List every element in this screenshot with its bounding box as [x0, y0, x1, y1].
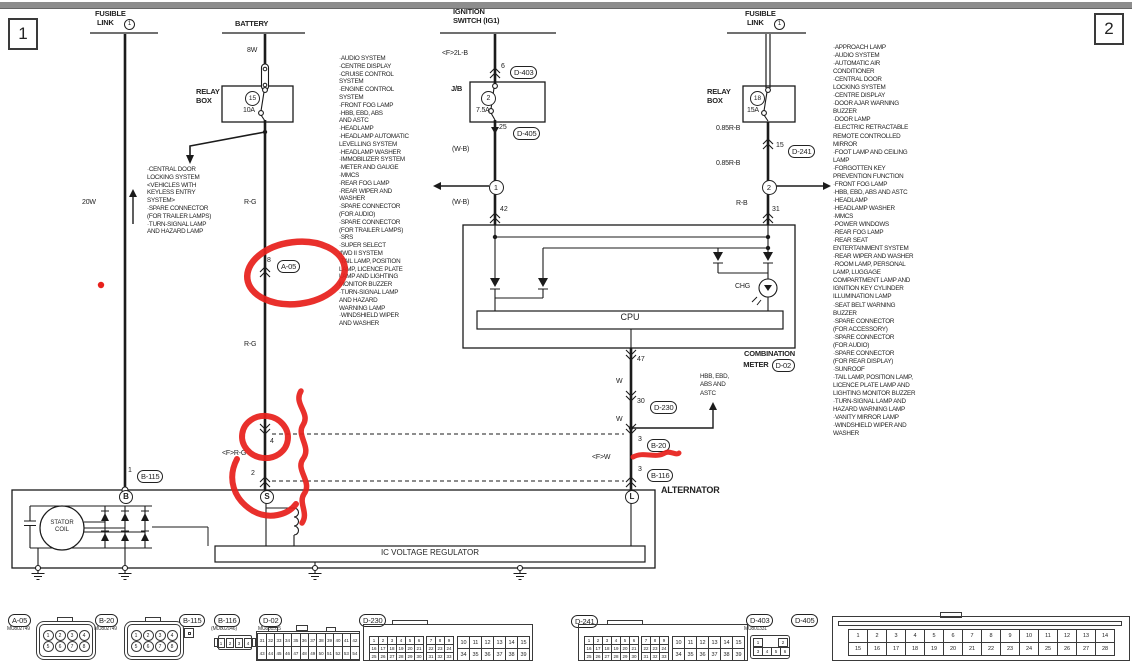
wire-label-frg: <F>R-G — [222, 450, 246, 457]
wire-label-wb-2: (W-B) — [452, 199, 469, 206]
wire-label-2lb: <F>2L-B — [442, 50, 468, 57]
connector-pill-d405-ref: D-405 — [513, 123, 540, 141]
pin-grid-d241-small: 123456789 161718192021222324 25262728293… — [584, 636, 668, 661]
junction-2-icon: 2 — [762, 180, 777, 195]
fuse-2-icon: 2 — [481, 91, 496, 106]
pin-grid-d02: 313233343536373839404142 434445464748495… — [256, 631, 360, 661]
pin-grid-d230-big: 101112131415 343536373839 — [457, 636, 529, 661]
fusible-link-right-number: 1 — [774, 19, 785, 30]
pin-2: 2 — [251, 470, 255, 477]
relay-box-left-label: RELAYBOX — [196, 88, 220, 105]
wiring-svg — [0, 0, 1132, 661]
connector-pill-b20-ref: B-20 — [647, 435, 670, 453]
junction-1-icon: 1 — [489, 180, 504, 195]
wire-label-8w: 8W — [247, 47, 257, 54]
red-dot — [98, 282, 104, 288]
fuse-rating-15a: 15A — [747, 107, 759, 114]
connector-pill-d405: D-405 — [791, 610, 818, 628]
fuse-15-icon: 15 — [245, 91, 260, 106]
part-number-d403: MU801331 — [744, 626, 767, 632]
wire-label-fw: <F>W — [592, 454, 610, 461]
fuse-rating-10a: 10A — [243, 107, 255, 114]
wire-label-085rb-1: 0.85R-B — [716, 125, 740, 132]
pin-grid-b20: 1234 5678 — [124, 621, 184, 660]
fusible-link-right-label2: LINK — [747, 19, 764, 28]
connector-pill-b115: B-115 — [179, 610, 205, 628]
wiring-diagram-page: 1 2 FUSIBLE LINK 1 BATTERY IGNITIONSWITC… — [0, 0, 1132, 661]
pin-6: 6 — [501, 63, 505, 70]
pin-25: 25 — [499, 124, 507, 131]
terminal-b-icon: B — [119, 490, 133, 504]
red-annotations — [0, 0, 1132, 661]
chg-lamp-label: CHG — [735, 283, 750, 290]
wire-label-085rb-2: 0.85R-B — [716, 160, 740, 167]
pin-1: 1 — [128, 467, 132, 474]
pin-grid-d403: 1 2 3456 — [750, 635, 790, 659]
relay-box-right-label: RELAYBOX — [707, 88, 731, 105]
wire-label-rg-1: R-G — [244, 199, 256, 206]
connector-pill-b116-ref: B-116 — [647, 465, 673, 483]
pin-30: 30 — [637, 398, 645, 405]
pin-grid-d230-small: 123456789 161718192021222324 25262728293… — [369, 636, 453, 661]
red-circle-b20-pin — [239, 413, 290, 461]
pin-15: 15 — [776, 142, 784, 149]
pin-grid-d405: 1234567891011121314 15161718192021222324… — [848, 629, 1114, 656]
battery-label: BATTERY — [235, 20, 268, 29]
part-number-a05: MU802749 — [7, 626, 30, 632]
wire-label-w1: W — [616, 378, 622, 385]
pin-31: 31 — [772, 206, 780, 213]
connector-pill-d230-ref: D-230 — [650, 397, 677, 415]
terminal-l-icon: L — [625, 490, 639, 504]
pin-3b: 3 — [638, 466, 642, 473]
right-systems-list: ·APPROACH LAMP·AUDIO SYSTEM·AUTOMATIC AI… — [833, 44, 915, 438]
red-hook-arc — [232, 459, 296, 516]
page-number-left: 1 — [8, 18, 38, 50]
stator-coil-label: STATORCOIL — [40, 520, 84, 534]
ignition-switch-label: IGNITIONSWITCH (IG1) — [453, 8, 499, 25]
connector-pill-d403-ref: D-403 — [510, 62, 537, 80]
hbb-branch-label: HBB, EBD,ABS ANDASTC — [700, 373, 729, 398]
cpu-label: CPU — [477, 312, 783, 322]
connector-pill-d241-ref: D-241 — [788, 141, 815, 159]
pin-b115-inner — [188, 632, 191, 635]
fuse-18-icon: 18 — [750, 91, 765, 106]
fusible-link-left-label2: LINK — [97, 19, 114, 28]
fuse-rating-75a: 7.5A — [476, 107, 490, 114]
wire-label-rb: R-B — [736, 200, 747, 207]
battery-branch-systems-list: ·CENTRAL DOORLOCKING SYSTEM<VEHICLES WIT… — [147, 166, 211, 236]
alternator-label: ALTERNATOR — [661, 486, 720, 495]
pin-3a: 3 — [638, 436, 642, 443]
ic-voltage-regulator-label: IC VOLTAGE REGULATOR — [215, 548, 645, 557]
pin-4: 4 — [270, 438, 274, 445]
red-squiggle-line — [299, 391, 307, 523]
terminal-s-icon: S — [260, 490, 274, 504]
combination-meter-label: COMBINATION — [678, 350, 795, 359]
wire-label-wb-1: (W-B) — [452, 146, 469, 153]
pin-grid-d241-big: 101112131415 343536373839 — [672, 636, 744, 661]
wire-label-rg-2: R-G — [244, 341, 256, 348]
pin-b115 — [184, 628, 194, 638]
pin-8: 8 — [267, 257, 271, 264]
pin-grid-a05: 1234 5678 — [36, 621, 96, 660]
part-number-b116: (MU802046) — [211, 626, 237, 632]
jb-label: J/B — [451, 85, 462, 94]
d405-inner-bar — [838, 621, 1122, 626]
pin-47: 47 — [637, 356, 645, 363]
wire-label-w2: W — [616, 416, 622, 423]
connector-pill-a05-ref: A-05 — [277, 256, 300, 274]
part-number-b20: MU802749 — [94, 626, 117, 632]
wire-label-20w: 20W — [82, 199, 96, 206]
fusible-link-left-number: 1 — [124, 19, 135, 30]
pin-42: 42 — [500, 206, 508, 213]
mid-systems-list: ·AUDIO SYSTEM·CENTRE DISPLAY·CRUISE CONT… — [339, 55, 409, 328]
page-number-right: 2 — [1094, 13, 1124, 45]
pin-grid-b116: 1234 — [218, 635, 252, 650]
connector-pill-b115-ref: B-115 — [137, 466, 163, 484]
combination-meter-label2: METERD-02 — [678, 359, 795, 372]
top-border-bar — [0, 2, 1132, 9]
